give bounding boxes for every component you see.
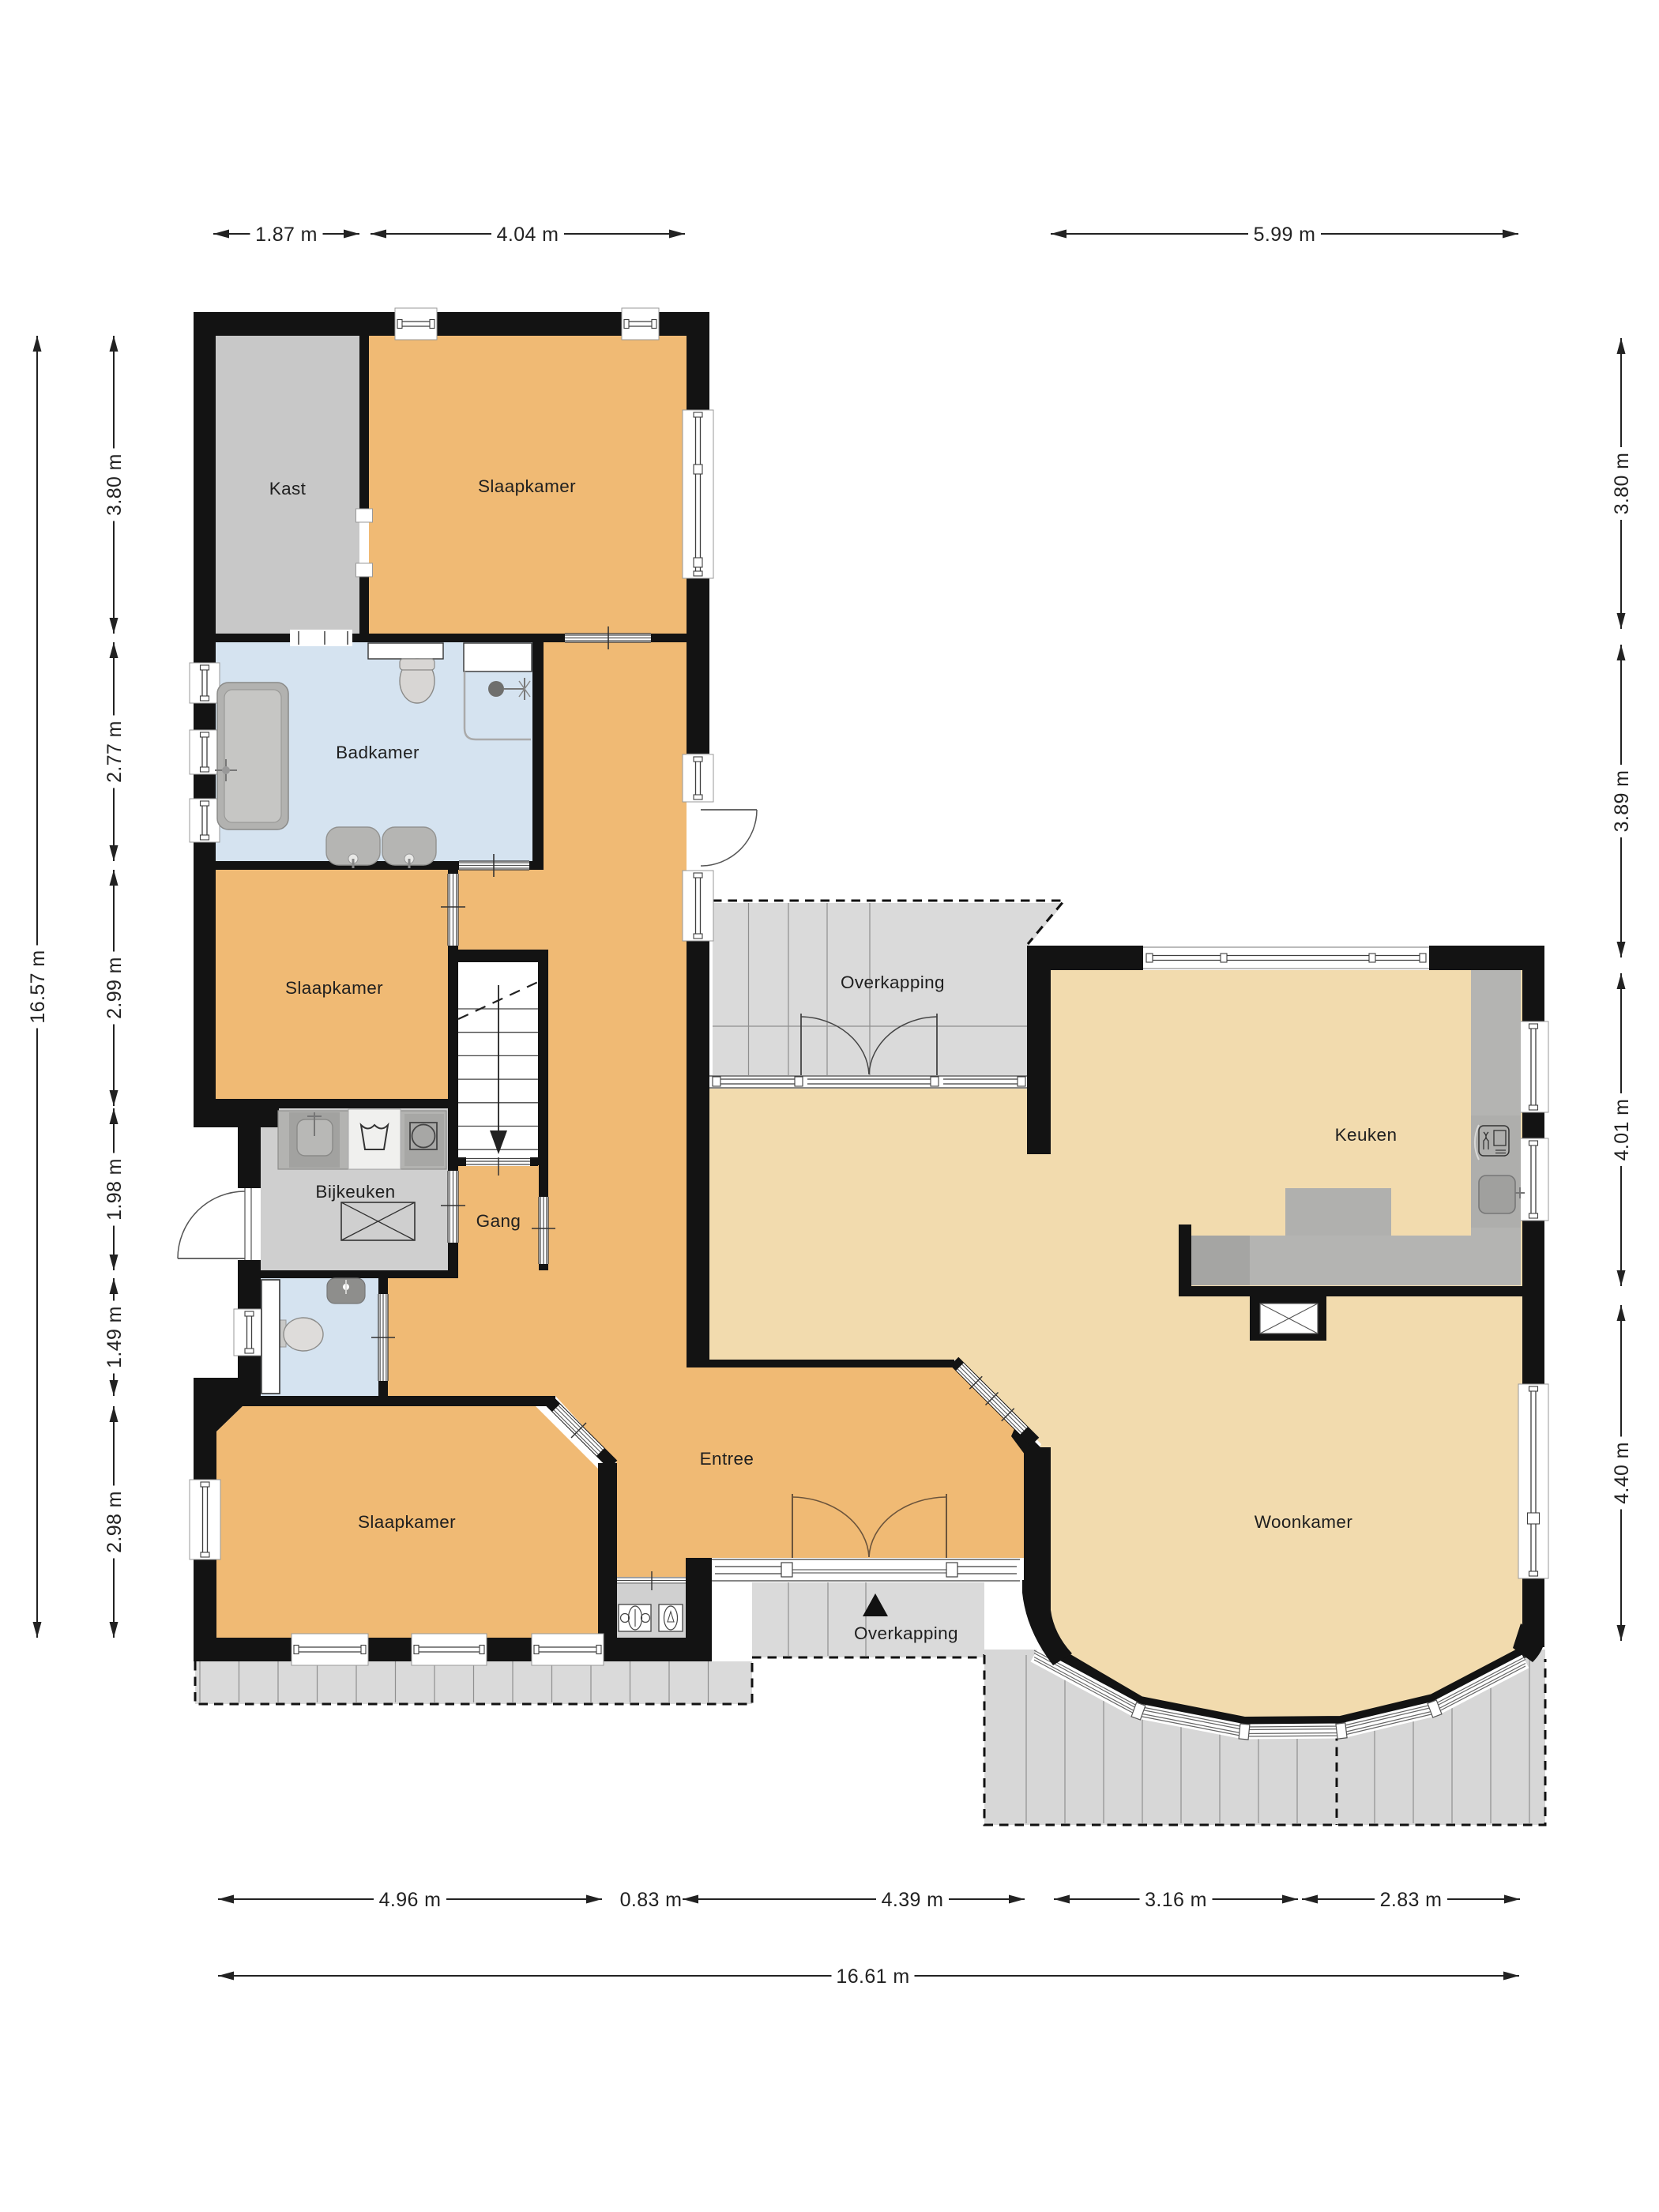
svg-text:Slaapkamer: Slaapkamer <box>358 1512 456 1532</box>
svg-text:3.16 m: 3.16 m <box>1145 1889 1207 1911</box>
svg-text:Gang: Gang <box>476 1211 521 1231</box>
svg-text:Slaapkamer: Slaapkamer <box>478 476 576 496</box>
svg-text:4.01 m: 4.01 m <box>1611 1099 1633 1161</box>
svg-text:1.87 m: 1.87 m <box>255 224 318 246</box>
svg-text:1.49 m: 1.49 m <box>103 1306 126 1368</box>
svg-text:1.98 m: 1.98 m <box>103 1158 126 1221</box>
svg-text:Bijkeuken: Bijkeuken <box>315 1182 395 1202</box>
svg-text:5.99 m: 5.99 m <box>1254 224 1316 246</box>
svg-text:3.89 m: 3.89 m <box>1611 770 1633 833</box>
svg-text:3.80 m: 3.80 m <box>103 453 126 516</box>
svg-text:2.77 m: 2.77 m <box>103 720 126 783</box>
svg-text:Woonkamer: Woonkamer <box>1255 1512 1353 1532</box>
svg-text:16.61 m: 16.61 m <box>836 1966 909 1988</box>
svg-text:2.98 m: 2.98 m <box>103 1491 126 1553</box>
svg-text:Overkapping: Overkapping <box>841 972 945 992</box>
svg-text:4.04 m: 4.04 m <box>497 224 559 246</box>
svg-text:Overkapping: Overkapping <box>854 1623 958 1643</box>
svg-text:2.99 m: 2.99 m <box>103 957 126 1019</box>
svg-text:Slaapkamer: Slaapkamer <box>285 978 383 998</box>
svg-text:Keuken: Keuken <box>1335 1125 1398 1145</box>
svg-text:0.83 m: 0.83 m <box>620 1889 683 1911</box>
svg-text:Kast: Kast <box>269 479 307 498</box>
svg-text:Entree: Entree <box>700 1449 754 1469</box>
svg-text:Badkamer: Badkamer <box>336 743 419 762</box>
svg-text:4.39 m: 4.39 m <box>882 1889 944 1911</box>
svg-text:2.83 m: 2.83 m <box>1380 1889 1443 1911</box>
svg-text:4.96 m: 4.96 m <box>379 1889 442 1911</box>
svg-text:4.40 m: 4.40 m <box>1611 1442 1633 1504</box>
svg-text:3.80 m: 3.80 m <box>1611 453 1633 515</box>
svg-text:16.57 m: 16.57 m <box>27 950 49 1023</box>
